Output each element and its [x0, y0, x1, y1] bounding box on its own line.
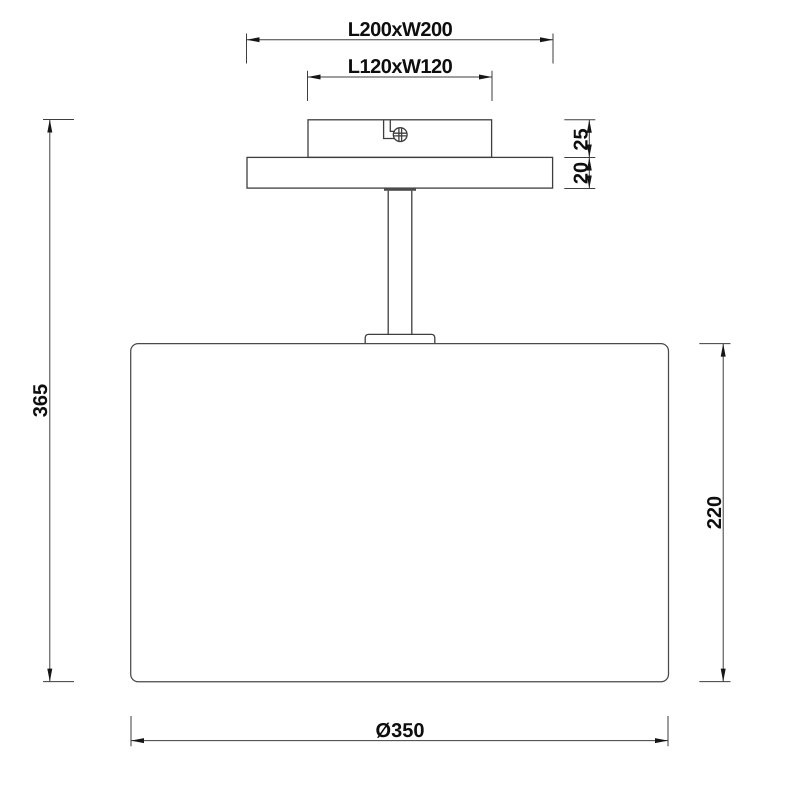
svg-text:25: 25 — [570, 128, 592, 150]
svg-text:365: 365 — [30, 384, 52, 417]
svg-text:20: 20 — [570, 162, 592, 184]
svg-text:L120xW120: L120xW120 — [348, 56, 453, 78]
svg-text:Ø350: Ø350 — [376, 720, 425, 742]
svg-text:220: 220 — [704, 496, 726, 529]
svg-text:L200xW200: L200xW200 — [348, 19, 453, 41]
